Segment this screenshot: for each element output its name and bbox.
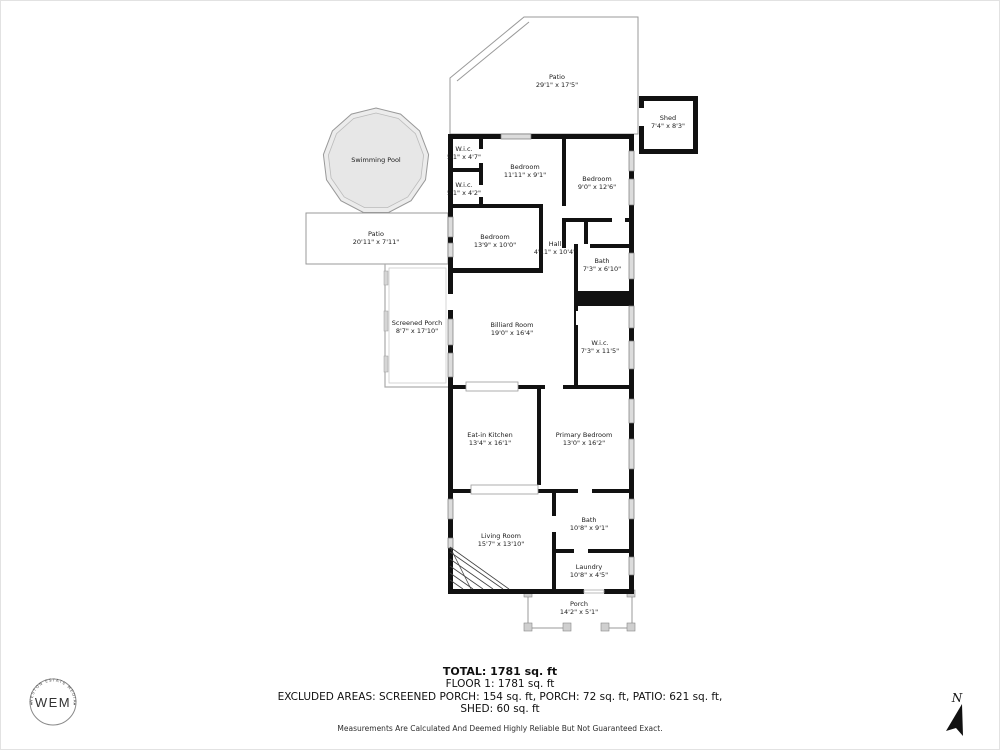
room-dims: 13'4" x 16'1" [467,439,512,447]
room-dims: 13'9" x 10'0" [474,241,516,249]
room-name: Swimming Pool [351,156,400,164]
room-dims: 5'1" x 4'7" [447,153,481,161]
room-label-swimming-pool: Swimming Pool [351,156,400,164]
room-name: Shed [651,114,685,122]
north-label: N [945,691,969,705]
floor1-area-text: FLOOR 1: 1781 sq. ft [1,678,999,691]
room-name: Primary Bedroom [556,431,613,439]
room-dims: 7'3" x 6'10" [583,265,621,273]
room-name: Porch [560,600,598,608]
room-dims: 15'7" x 13'10" [478,540,524,548]
room-dims: 13'0" x 16'2" [556,439,613,447]
stairs [450,547,509,589]
room-name: Bedroom [578,175,616,183]
room-label-porch: Porch14'2" x 5'1" [560,600,598,616]
disclaimer-text: Measurements Are Calculated And Deemed H… [1,724,999,733]
room-label-patio-left: Patio20'11" x 7'11" [353,230,399,246]
room-dims: 4'11" x 10'4" [534,248,576,256]
cased-openings [466,382,604,593]
room-name: Bath [583,257,621,265]
room-name: Patio [536,73,578,81]
room-name: Bath [570,516,608,524]
room-dims: 10'8" x 4'5" [570,571,608,579]
floor-plan-drawing: WESTON ESTATE MEDIA WEM [1,1,1000,750]
area-summary: TOTAL: 1781 sq. ft FLOOR 1: 1781 sq. ft … [1,665,999,733]
room-dims: 11'11" x 9'1" [504,171,546,179]
room-dims: 10'8" x 9'1" [570,524,608,532]
room-name: Laundry [570,563,608,571]
room-name: Living Room [478,532,524,540]
room-label-bath-2: Bath10'8" x 9'1" [570,516,608,532]
room-label-bedroom-2: Bedroom9'0" x 12'6" [578,175,616,191]
room-name: Bedroom [504,163,546,171]
room-dims: 20'11" x 7'11" [353,238,399,246]
excluded-areas-text-line1: EXCLUDED AREAS: SCREENED PORCH: 154 sq. … [1,691,999,704]
room-dims: 7'4" x 8'3" [651,122,685,130]
floor-plan-page: WESTON ESTATE MEDIA WEM Patio29'1" x 17'… [0,0,1000,750]
room-dims: 7'3" x 11'5" [581,347,619,355]
room-label-primary-bedroom: Primary Bedroom13'0" x 16'2" [556,431,613,447]
room-dims: 5'1" x 4'2" [447,189,481,197]
room-label-wic-3: W.i.c.7'3" x 11'5" [581,339,619,355]
room-name: Eat-in Kitchen [467,431,512,439]
room-label-laundry: Laundry10'8" x 4'5" [570,563,608,579]
room-label-wic-2: W.i.c.5'1" x 4'2" [447,181,481,197]
room-label-bath-1: Bath7'3" x 6'10" [583,257,621,273]
room-dims: 8'7" x 17'10" [392,327,442,335]
room-name: Screened Porch [392,319,442,327]
room-dims: 19'0" x 16'4" [491,329,534,337]
room-name: Billiard Room [491,321,534,329]
room-label-living-room: Living Room15'7" x 13'10" [478,532,524,548]
room-name: Hall [534,240,576,248]
room-name: Patio [353,230,399,238]
room-dims: 9'0" x 12'6" [578,183,616,191]
excluded-areas-text-line2: SHED: 60 sq. ft [1,703,999,716]
room-label-eat-in-kitchen: Eat-in Kitchen13'4" x 16'1" [467,431,512,447]
room-label-wic-1: W.i.c.5'1" x 4'7" [447,145,481,161]
total-area-text: TOTAL: 1781 sq. ft [1,665,999,678]
room-name: W.i.c. [447,145,481,153]
room-name: W.i.c. [581,339,619,347]
room-label-bedroom-1: Bedroom11'11" x 9'1" [504,163,546,179]
room-label-patio-top: Patio29'1" x 17'5" [536,73,578,89]
room-label-hall: Hall4'11" x 10'4" [534,240,576,256]
room-label-bedroom-3: Bedroom13'9" x 10'0" [474,233,516,249]
room-name: W.i.c. [447,181,481,189]
room-label-screened-porch: Screened Porch8'7" x 17'10" [392,319,442,335]
room-dims: 29'1" x 17'5" [536,81,578,89]
room-name: Bedroom [474,233,516,241]
room-label-shed: Shed7'4" x 8'3" [651,114,685,130]
room-label-billiard-room: Billiard Room19'0" x 16'4" [491,321,534,337]
room-dims: 14'2" x 5'1" [560,608,598,616]
